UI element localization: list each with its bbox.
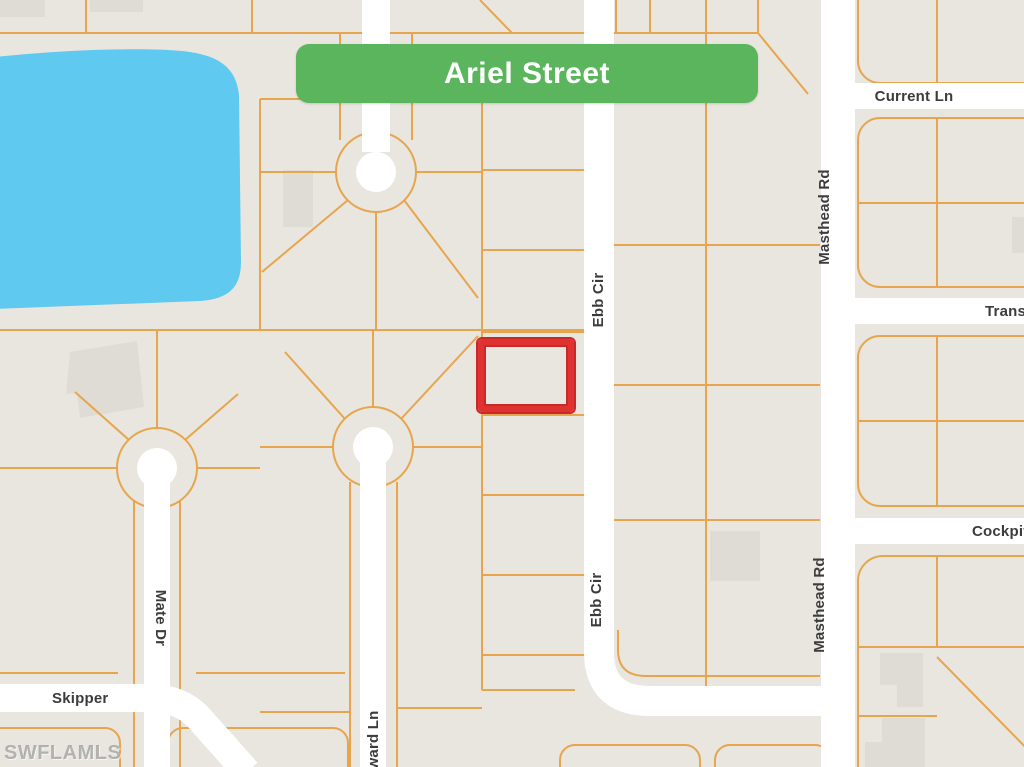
mls-watermark: SWFLAMLS — [4, 742, 121, 765]
street-label-transom: Transom — [985, 303, 1024, 320]
highlighted-parcel — [478, 339, 574, 412]
street-label-mate-dr: Mate Dr — [151, 558, 169, 678]
lake — [0, 49, 241, 309]
street-label-masthead-rd-upper: Masthead Rd — [816, 157, 834, 277]
street-label-ebb-cir-upper: Ebb Cir — [590, 240, 608, 360]
street-label-skipper: Skipper — [52, 690, 108, 707]
street-label-current-ln: Current Ln — [860, 88, 968, 105]
map-canvas[interactable]: Ariel Street Current Ln Transom Cockpit … — [0, 0, 1024, 767]
street-label-cockpit: Cockpit — [972, 523, 1024, 540]
street-banner: Ariel Street — [296, 44, 758, 103]
street-label-ebb-cir-lower: Ebb Cir — [588, 540, 606, 660]
street-banner-label: Ariel Street — [444, 57, 610, 91]
street-label-ward-ln: ward Ln — [365, 680, 383, 767]
street-label-masthead-rd-lower: Masthead Rd — [811, 545, 829, 665]
